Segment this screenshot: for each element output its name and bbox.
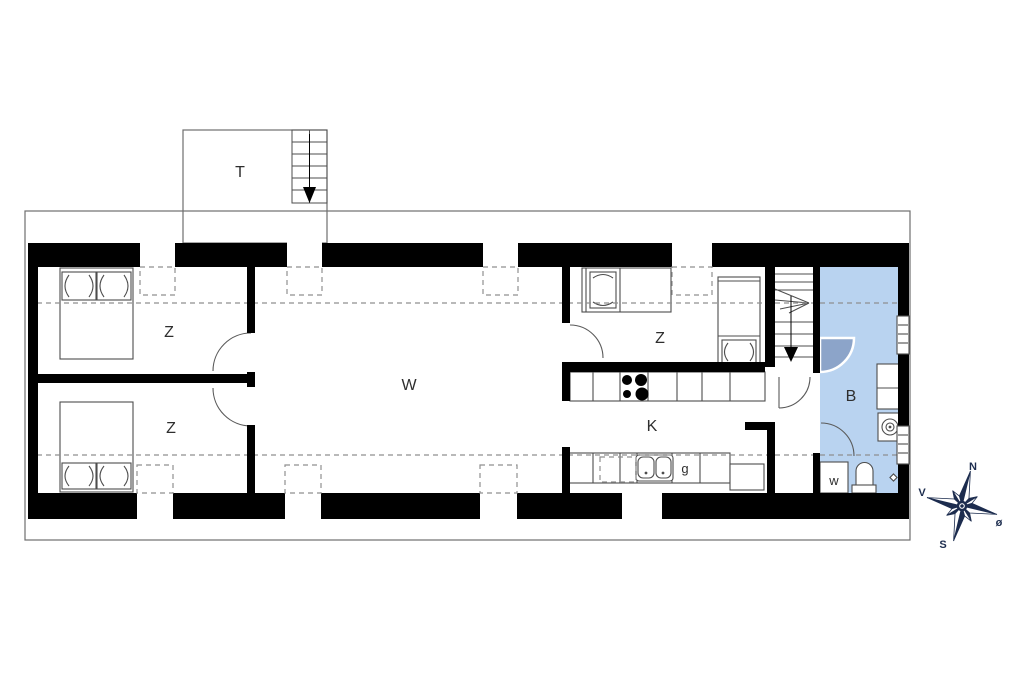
room-label-living-room: W — [401, 377, 417, 394]
door-arc-bedroom-bottom-left — [213, 388, 251, 426]
door-arc-stair-hall — [779, 377, 810, 408]
kitchen-counter-south — [568, 453, 764, 490]
room-label-bedroom-right: Z — [655, 330, 665, 347]
compass-star-icon — [919, 463, 1006, 550]
bed-single-east — [718, 277, 760, 367]
door-arc-bedroom-top-left — [213, 333, 251, 371]
window-east-upper — [897, 316, 909, 354]
kitchen-sink-icon — [636, 455, 673, 481]
label-dishwasher: g — [681, 461, 688, 476]
room-label-bathroom: B — [846, 388, 857, 405]
room-label-terrace: T — [235, 164, 245, 181]
floor-plan-page: T Z Z W Z K B g w N V S ø — [0, 0, 1024, 682]
room-label-bedroom-top-left: Z — [164, 324, 174, 341]
walls — [28, 243, 909, 519]
kitchen-cabinet — [730, 464, 764, 490]
compass-rose: N V S ø — [918, 461, 1005, 551]
room-label-kitchen: K — [647, 418, 658, 435]
main-stairs — [775, 274, 813, 362]
bed-double-top-left — [60, 268, 133, 359]
room-label-bedroom-bottom-left: Z — [166, 420, 176, 437]
bathroom-vanity — [877, 364, 900, 409]
stairs-down-arrow-icon — [784, 347, 798, 362]
terrace-block — [183, 130, 327, 243]
label-washing-machine: w — [828, 473, 839, 488]
window-east-lower — [897, 426, 909, 464]
floor-plan-drawing: T Z Z W Z K B g w N V S ø — [0, 0, 1024, 682]
bed-double-bottom-left — [60, 402, 133, 492]
wall-east — [898, 243, 909, 519]
door-arc-bedroom-right — [570, 325, 603, 358]
compass-label-east: ø — [996, 517, 1003, 529]
compass-label-south: S — [939, 539, 946, 551]
compass-label-north: N — [969, 461, 977, 473]
kitchen-counter-north — [570, 372, 765, 401]
compass-label-west: V — [918, 487, 926, 499]
bed-single-north — [582, 268, 671, 312]
terrace-outline — [183, 130, 327, 243]
